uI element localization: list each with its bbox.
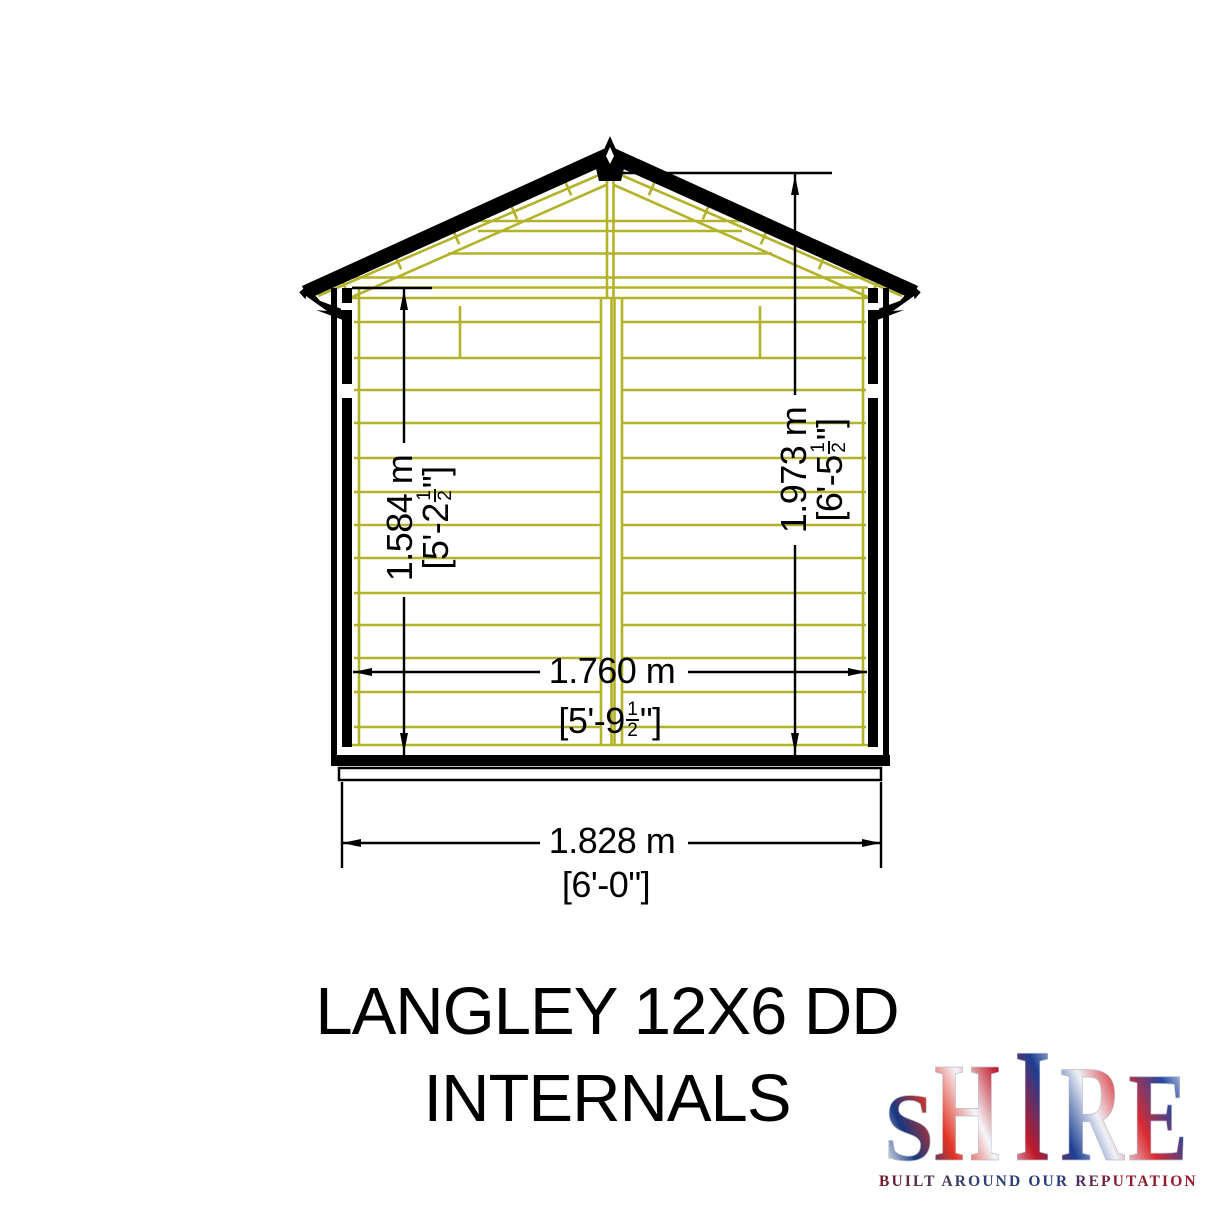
logo-letter-s: S (884, 1074, 934, 1181)
logo-tagline: BUILT AROUND OUR REPUTATION (879, 1173, 1197, 1190)
ridge-height-dimension: 1.973 m [6'-512"] (776, 395, 848, 545)
wall-height-dimension: 1.584 m [5'-212"] (382, 443, 454, 593)
shed-internals-diagram-page: 1.584 m [5'-212"] 1.973 m [6'-512"] 1.76… (0, 0, 1214, 1214)
wall-height-metric: 1.584 m (382, 455, 418, 582)
internal-width-metric: 1.760 m (549, 653, 676, 689)
internal-width-dimension-imperial: [5'-912"] (531, 694, 689, 748)
external-width-metric: 1.828 m (549, 823, 676, 859)
shire-logo: S H I R E BUILT AROUND OUR REPUTATION (870, 1040, 1204, 1205)
logo-letter-e: E (1128, 1048, 1188, 1188)
internal-width-dimension-metric: 1.760 m (537, 650, 687, 692)
ridge-height-metric: 1.973 m (776, 407, 812, 534)
wall-height-imperial: [5'-212"] (418, 466, 454, 569)
external-width-dimension-metric: 1.828 m (537, 820, 687, 862)
floor-bearer (339, 768, 881, 780)
floor (331, 755, 890, 780)
logo-letter-h: H (934, 1040, 1000, 1191)
internal-width-imperial: [5'-912"] (558, 703, 661, 739)
logo-letter-r: R (1060, 1040, 1125, 1190)
ridge-height-imperial: [6'-512"] (812, 418, 848, 521)
roof (302, 136, 918, 317)
external-width-imperial: [6'-0"] (562, 867, 650, 903)
external-width-dimension-imperial: [6'-0"] (541, 864, 671, 906)
